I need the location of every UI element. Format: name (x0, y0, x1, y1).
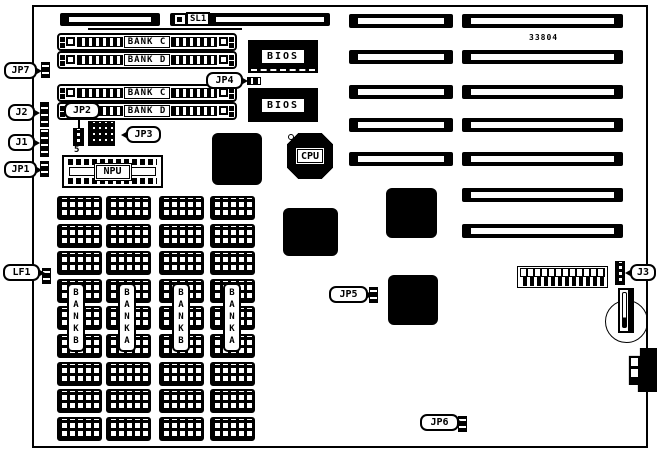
jp2-pin-number: 5 (74, 145, 79, 155)
isa-slot (349, 118, 453, 132)
dip-switch-pins (520, 277, 605, 286)
dram-bank-label: BANKB (172, 283, 190, 352)
jp6-label: JP6 (430, 417, 448, 428)
isa-slot (462, 85, 623, 99)
dram-chip (106, 196, 151, 220)
simm-contacts (77, 55, 123, 65)
isa-slot (462, 118, 623, 132)
dram-chip (210, 196, 255, 220)
simm-latch-icon (59, 86, 76, 100)
isa-slot (349, 152, 453, 166)
dram-chip (159, 224, 204, 248)
pga-component (88, 121, 115, 146)
jumper-jp2 (73, 128, 84, 146)
dram-chip (210, 417, 255, 441)
isa-slot (349, 85, 453, 99)
simm-contacts (77, 37, 123, 47)
jp3-label: JP3 (134, 129, 152, 140)
j3-label: J3 (637, 267, 649, 278)
dip-switch (517, 266, 608, 288)
dram-chip (106, 389, 151, 413)
dram-chip (210, 224, 255, 248)
simm-latch-icon (218, 104, 235, 118)
jp1-label: JP1 (11, 164, 29, 175)
bios-chip-label: BIOS (262, 50, 304, 63)
isa-slot (60, 13, 160, 26)
sl1-label: SL1 (186, 12, 210, 26)
slot-stripe (216, 17, 324, 22)
simm-socket: BANK C (57, 33, 237, 51)
dram-chip (106, 417, 151, 441)
callout-jp2: JP2 (64, 102, 100, 119)
qfp-chip (388, 275, 438, 325)
isa-slot (349, 50, 453, 64)
isa-slot (349, 14, 453, 28)
dram-chip (57, 389, 102, 413)
bios-chip-label: BIOS (262, 99, 304, 112)
callout-j1: J1 (8, 134, 35, 151)
dram-chip (57, 362, 102, 386)
simm-bank-label: BANK D (124, 54, 171, 66)
jp5-label: JP5 (339, 289, 357, 300)
dram-chip (106, 362, 151, 386)
callout-lf1: LF1 (3, 264, 40, 281)
dram-chip (57, 196, 102, 220)
simm-latch-icon (218, 35, 235, 49)
simm-latch-icon (59, 35, 76, 49)
callout-jp4: JP4 (206, 72, 243, 89)
simm-contacts (171, 106, 217, 116)
dram-chip (210, 362, 255, 386)
sl1-marker-icon (175, 15, 185, 24)
simm-bank-label: BANK C (124, 36, 171, 48)
dram-chip (159, 389, 204, 413)
lf1-label: LF1 (12, 267, 30, 278)
callout-jp3: JP3 (126, 126, 161, 143)
motherboard-diagram: SL1 33804 BIOS BIOS JP7 J2 J1 JP1 LF1 JP… (0, 0, 657, 456)
dram-bank-label: BANKA (118, 283, 136, 352)
jp7-label: JP7 (11, 65, 29, 76)
trace-line (88, 28, 242, 30)
jp4-label: JP4 (215, 75, 233, 86)
isa-slot (462, 50, 623, 64)
simm-latch-icon (59, 53, 76, 67)
callout-jp6: JP6 (420, 414, 459, 431)
dram-chip (57, 224, 102, 248)
simm-bank-label: BANK D (124, 105, 171, 117)
dram-chip (106, 224, 151, 248)
callout-jp1: JP1 (4, 161, 37, 178)
callout-j2: J2 (8, 104, 35, 121)
simm-contacts (77, 88, 123, 98)
callout-j3: J3 (630, 264, 656, 281)
dip-switch-levers (520, 268, 605, 277)
dram-chip (159, 362, 204, 386)
dram-chip (57, 417, 102, 441)
isa-slot (462, 188, 623, 202)
simm-contacts (171, 37, 217, 47)
cpu-socket: CPU (287, 133, 333, 179)
simm-bank-label: BANK C (124, 87, 171, 99)
j2-label: J2 (15, 107, 27, 118)
board-part-number: 33804 (529, 33, 558, 42)
isa-slot (462, 152, 623, 166)
bios-chip-top: BIOS (248, 40, 318, 73)
dram-bank-label: BANKB (67, 283, 85, 352)
cpu-label: CPU (295, 147, 325, 165)
j1-label: J1 (15, 137, 27, 148)
cpu-pin1-icon (288, 134, 294, 140)
dram-chip (159, 196, 204, 220)
dram-chip (210, 251, 255, 275)
isa-slot-sl1: SL1 (170, 13, 330, 26)
simm-socket: BANK D (57, 51, 237, 69)
crystal-oscillator (618, 288, 634, 333)
npu-socket: NPU (62, 155, 163, 188)
isa-slot (462, 14, 623, 28)
callout-jp5: JP5 (329, 286, 368, 303)
simm-contacts (171, 55, 217, 65)
isa-slot (462, 224, 623, 238)
qfp-chip (212, 133, 262, 185)
dram-chip (159, 417, 204, 441)
jp2-label: JP2 (73, 105, 91, 116)
qfp-chip (283, 208, 338, 256)
simm-contacts (171, 88, 217, 98)
bios-chip-bottom: BIOS (248, 88, 318, 122)
simm-latch-icon (218, 53, 235, 67)
dram-chip (106, 251, 151, 275)
dram-bank-label: BANKA (223, 283, 241, 352)
qfp-chip (386, 188, 437, 238)
dram-chip (159, 251, 204, 275)
npu-label: NPU (94, 163, 132, 181)
dram-chip (210, 389, 255, 413)
dram-chip (57, 251, 102, 275)
callout-jp7: JP7 (4, 62, 37, 79)
